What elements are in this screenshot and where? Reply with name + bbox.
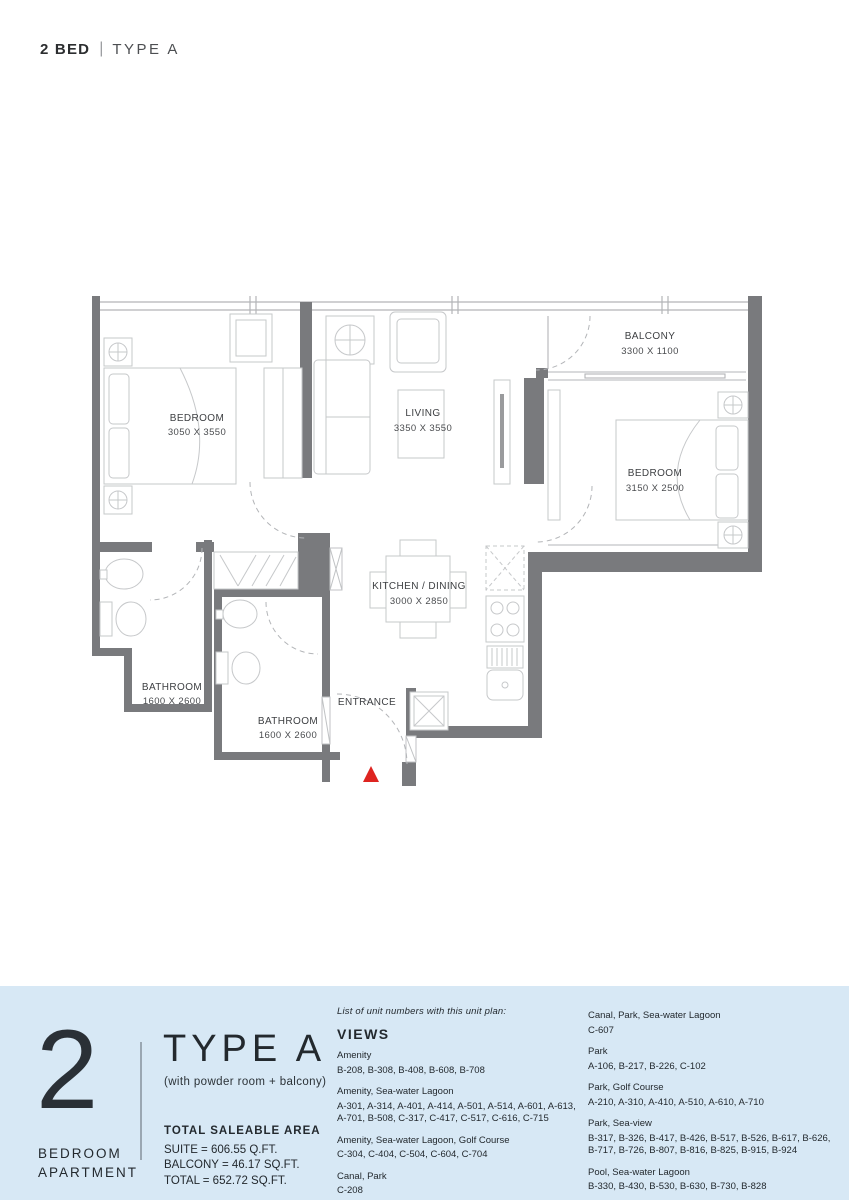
room-dims-bedroom1: 3050 X 3550 <box>168 427 226 438</box>
views-column-1: List of unit numbers with this unit plan… <box>337 1006 577 1200</box>
views-entry: Park A-106, B-217, B-226, C-102 <box>588 1046 840 1073</box>
unit-label-apartment: APARTMENT <box>38 1165 138 1180</box>
room-label-entrance: ENTRANCE <box>338 697 396 708</box>
views-entry: Amenity, Sea-water Lagoon A-301, A-314, … <box>337 1086 577 1126</box>
views-entry: Park, Golf Course A-210, A-310, A-410, A… <box>588 1082 840 1109</box>
saleable-area: TOTAL SALEABLE AREA SUITE = 606.55 Q.FT.… <box>164 1124 321 1189</box>
type-subtitle: (with powder room + balcony) <box>164 1076 326 1088</box>
unit-number: 2 <box>36 1014 98 1126</box>
room-label-kitchen: KITCHEN / DINING <box>372 581 466 592</box>
floor-plan-page: 2 BED | TYPE A <box>0 0 849 1200</box>
room-label-balcony: BALCONY <box>625 331 676 342</box>
header-bed-count: 2 BED <box>40 41 90 58</box>
views-heading: VIEWS <box>337 1028 577 1041</box>
room-dims-kitchen: 3000 X 2850 <box>390 596 448 607</box>
room-dims-balcony: 3300 X 1100 <box>621 346 679 357</box>
unit-label-bedroom: BEDROOM <box>38 1146 122 1161</box>
type-title: TYPE A <box>163 1028 326 1071</box>
entrance-marker-icon <box>363 766 379 782</box>
header-separator: | <box>99 40 103 58</box>
room-dims-bathroom2: 1600 X 2600 <box>259 730 317 741</box>
views-entry: Park, Sea-view B-317, B-326, B-417, B-42… <box>588 1118 840 1158</box>
window-wall-top <box>100 296 748 314</box>
area-balcony: BALCONY = 46.17 SQ.FT. <box>164 1158 321 1174</box>
room-label-bedroom1: BEDROOM <box>170 413 224 424</box>
area-suite: SUITE = 606.55 Q.FT. <box>164 1143 321 1159</box>
views-intro: List of unit numbers with this unit plan… <box>337 1006 577 1019</box>
room-label-bathroom2: BATHROOM <box>258 716 318 727</box>
views-entry: Canal, Park C-208 <box>337 1171 577 1198</box>
views-entry: Pool, Sea-water Lagoon B-330, B-430, B-5… <box>588 1167 840 1194</box>
room-label-bathroom1: BATHROOM <box>142 682 202 693</box>
room-dims-living: 3350 X 3550 <box>394 423 452 434</box>
views-column-2: Canal, Park, Sea-water Lagoon C-607 Park… <box>588 1010 840 1200</box>
room-label-living: LIVING <box>405 408 440 419</box>
views-entry: Canal, Park, Sea-water Lagoon C-607 <box>588 1010 840 1037</box>
room-dims-bathroom1: 1600 X 2600 <box>143 696 201 707</box>
closet <box>214 552 298 589</box>
views-entry: Amenity B-208, B-308, B-408, B-608, B-70… <box>337 1050 577 1077</box>
living-furniture <box>314 312 510 484</box>
area-total: TOTAL = 652.72 SQ.FT. <box>164 1174 321 1190</box>
room-label-bedroom2: BEDROOM <box>628 468 682 479</box>
page-header: 2 BED | TYPE A <box>40 40 180 58</box>
views-entry: Amenity, Sea-water Lagoon, Golf Course C… <box>337 1135 577 1162</box>
header-type: TYPE A <box>112 41 180 58</box>
area-heading: TOTAL SALEABLE AREA <box>164 1124 321 1140</box>
floor-plan-drawing: BEDROOM 3050 X 3550 LIVING 3350 X 3550 B… <box>85 288 775 803</box>
footer-info-band: 2 BEDROOM APARTMENT TYPE A (with powder … <box>0 986 849 1200</box>
vertical-divider <box>140 1042 142 1160</box>
room-dims-bedroom2: 3150 X 2500 <box>626 483 684 494</box>
